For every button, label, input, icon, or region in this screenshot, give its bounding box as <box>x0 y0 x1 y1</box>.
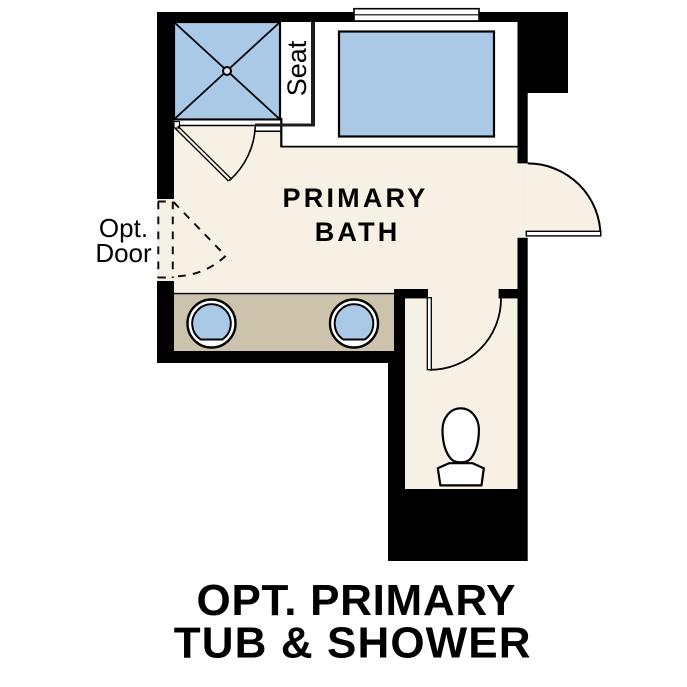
svg-text:BATH: BATH <box>315 217 401 247</box>
svg-text:Seat: Seat <box>282 40 312 96</box>
svg-text:TUB & SHOWER: TUB & SHOWER <box>174 619 532 668</box>
svg-text:Door: Door <box>95 238 152 268</box>
svg-text:PRIMARY: PRIMARY <box>283 183 429 213</box>
